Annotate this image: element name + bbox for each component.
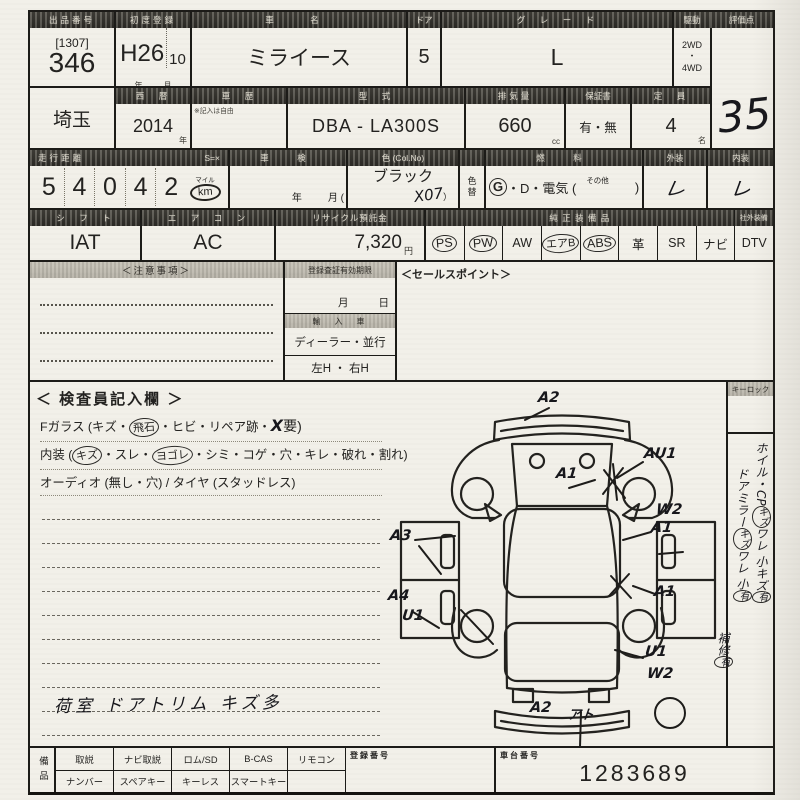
equip-airbag: エアB — [542, 226, 581, 260]
accessory-keyless: キーレス — [172, 771, 230, 793]
model-code-cell: 型 式 DBA - LA300S — [288, 88, 466, 148]
accessory-col-label-cell: 備品 — [30, 748, 56, 792]
band-equipment: シ フ ト IAT エ ア コ ン AC リサイクル預託金 7,320 円 純 … — [28, 210, 775, 262]
caution-line — [40, 304, 273, 306]
note-line — [42, 592, 380, 616]
note-line — [42, 496, 380, 520]
fuel-close-paren: ) — [635, 180, 639, 195]
caution-box: ＜注意事項＞ — [30, 262, 285, 380]
door-cell: ドア 5 — [408, 12, 442, 86]
auction-sheet: 出品番号 [1307] 346 初度登録 H26 10 年 月 車 名 ミライー… — [0, 0, 800, 800]
equip-abs: ABS — [581, 226, 620, 260]
damage-annotation: アト — [567, 704, 595, 723]
registration-number-box: 登録番号 — [346, 748, 496, 792]
exterior-grade-cell: 外装 レ — [644, 150, 708, 208]
color-value: ブラック — [373, 169, 433, 185]
warranty-header: 保証書 — [566, 88, 630, 104]
side-note-wheel: ホイル・CPキズワレ 小キズ有 — [752, 442, 771, 746]
import-header: 輸 入 車 — [285, 314, 395, 328]
mileage-digit: 0 — [95, 168, 126, 206]
reg-month-value: 10 — [169, 51, 186, 68]
interior-grade-cell: 内装 レ — [708, 150, 773, 208]
inspector-line-fglass: Fガラス (キズ・飛石・ヒビ・リペア跡・X要) — [40, 413, 382, 442]
accessory-remote: リモコン — [288, 748, 345, 770]
circle-mark-rear — [655, 698, 685, 728]
car-damage-diagram: A2 AU1 A1 W2 A1 A3 A4 U1 A1 U1 W2 A2 アト — [388, 382, 728, 748]
shift-header: シ フ ト — [30, 210, 140, 226]
equip-navi: ナビ — [697, 226, 736, 260]
mileage-cell: 走行距離 S=× 5 4 0 4 2 マイル km — [30, 150, 230, 208]
year-header: 西 暦 — [116, 88, 190, 104]
fuel-cell: 燃 料 G・D・電気 (その他) — [486, 150, 644, 208]
inspector-line-audio: オーディオ (無し・穴) / タイヤ (スタッドレス) — [40, 470, 382, 496]
equip-ps: PS — [426, 226, 465, 260]
drive-dot: ・ — [687, 51, 696, 62]
note-line: 荷室 ドアトリム キズ多 — [42, 688, 380, 712]
recycle-fee-unit: 円 — [404, 244, 413, 257]
color-cell: 色 (Col.No) ブラック X07） — [348, 150, 460, 208]
first-registration-header: 初度登録 — [116, 12, 190, 28]
aircon-value: AC — [142, 226, 274, 260]
mileage-header-suffix: S=× — [204, 153, 220, 163]
leader-a1-rear — [633, 586, 655, 594]
lot-number-cell: 出品番号 [1307] 346 — [30, 12, 116, 86]
leader-a1-right — [623, 532, 651, 540]
note-line — [42, 664, 380, 688]
history-header: 車 歴 — [192, 88, 286, 104]
mileage-digit: 5 — [34, 168, 65, 206]
displacement-unit: cc — [552, 137, 560, 146]
fuel-gasoline-circled: G — [488, 177, 507, 196]
damage-annotation: U1 — [644, 644, 668, 660]
capacity-cell: 定 員 4 名 — [632, 88, 710, 148]
expiry-day-label: 日 — [379, 295, 390, 310]
accessory-rom-sd: ロム/SD — [172, 748, 230, 770]
key-lock-header: キーロック — [728, 382, 773, 396]
drive-header: 駆動 — [674, 12, 710, 28]
history-note: ※記入は自由 — [192, 104, 286, 115]
damage-annotation: A3 — [389, 528, 412, 544]
sales-point-box: ＜セールスポイント＞ — [397, 262, 773, 380]
displacement-cell: 排気量 660 cc — [466, 88, 566, 148]
mileage-digit: 2 — [156, 168, 186, 206]
band-vehicle-mid: 埼玉 西 暦 2014 年 車 歴 ※記入は自由 型 式 DBA - LA300… — [28, 88, 712, 150]
shaken-year-label: 年 — [292, 189, 302, 204]
caution-header: ＜注意事項＞ — [30, 262, 283, 278]
side-note-mirror: ドアミラーキズワレ 小有 — [733, 442, 752, 746]
car-diagram-svg — [388, 382, 728, 748]
band-bottom: 備品 取説 ナビ取説 ロム/SD B-CAS リモコン ナンバー スペアキー キ… — [28, 748, 775, 795]
shift-value: IAT — [30, 226, 140, 260]
damage-annotation: W2 — [646, 666, 674, 682]
right-side-column: キーロック ホイル・CPキズワレ 小キズ有 ドアミラーキズワレ 小有 補修有 — [726, 382, 773, 746]
band-notes: ＜注意事項＞ 登録査証有効期限 月 日 輸 入 車 ディーラー・並行 左H ・ … — [28, 262, 775, 382]
year-cell: 西 暦 2014 年 — [116, 88, 192, 148]
inspector-title: ＜ 検査員記入欄 ＞ — [36, 388, 386, 409]
fuel-header: 燃 料 — [486, 150, 642, 166]
car-name-value: ミライース — [192, 28, 406, 86]
expiry-header: 登録査証有効期限 — [285, 262, 395, 278]
year-unit: 年 — [179, 135, 187, 146]
accessory-number-plate: ナンバー — [56, 771, 114, 793]
side-note-repair: 補修有 — [714, 442, 733, 746]
damage-annotation: W2 — [655, 502, 683, 518]
grade-header: グ レ ー ド — [442, 12, 672, 28]
fuel-options: ・D・電気 ( — [507, 178, 576, 197]
sales-point-header: ＜セールスポイント＞ — [397, 262, 773, 282]
accessory-col-label: 備品 — [35, 756, 49, 785]
damage-annotation: A2 — [529, 700, 552, 716]
exterior-mark: レ — [644, 161, 708, 208]
drive-cell: 駆動 2WD ・ 4WD — [674, 12, 710, 86]
accessory-grid: 取説 ナビ取説 ロム/SD B-CAS リモコン ナンバー スペアキー キーレス… — [56, 748, 346, 792]
score-value: 35 — [704, 25, 779, 151]
grade-value: L — [442, 28, 672, 86]
accessory-bcas: B-CAS — [230, 748, 288, 770]
history-cell: 車 歴 ※記入は自由 — [192, 88, 288, 148]
reg-year-value: H26 — [120, 40, 164, 68]
shaken-month-label: 月 ( — [328, 189, 344, 204]
damage-annotation: U1 — [401, 608, 425, 624]
note-line — [42, 616, 380, 640]
reg-year-unit: 年 — [135, 80, 143, 86]
key-lock-box — [728, 396, 773, 434]
note-line — [42, 520, 380, 544]
drive-2wd: 2WD — [682, 40, 702, 51]
caution-line — [40, 332, 273, 334]
chassis-number-value: 1283689 — [496, 755, 773, 792]
note-line — [42, 544, 380, 568]
model-code-header: 型 式 — [288, 88, 464, 104]
history-value — [192, 115, 286, 148]
chassis-number-box: 車台番号 1283689 — [496, 748, 773, 792]
accessory-empty — [288, 771, 345, 793]
recycle-fee-header: リサイクル預託金 — [276, 210, 424, 226]
side-handwritten-notes: ホイル・CPキズワレ 小キズ有 ドアミラーキズワレ 小有 補修有 — [728, 434, 773, 746]
equip-dtv: DTV — [735, 226, 773, 260]
note-line — [42, 568, 380, 592]
drive-4wd: 4WD — [682, 63, 702, 74]
accessory-spare-key: スペアキー — [114, 771, 172, 793]
damage-annotation: A1 — [555, 466, 578, 482]
color-header: 色 (Col.No) — [348, 150, 458, 166]
mileage-km-unit: km — [189, 183, 221, 202]
inspector-notes: ＜ 検査員記入欄 ＞ Fガラス (キズ・飛石・ヒビ・リペア跡・X要) 内装 (キ… — [30, 382, 388, 746]
aircon-header: エ ア コ ン — [142, 210, 274, 226]
equip-leather: 革 — [619, 226, 658, 260]
warranty-value: 有・無 — [566, 104, 630, 148]
note-line — [42, 712, 380, 736]
fuel-other-label: その他 — [586, 175, 609, 186]
band-mileage: 走行距離 S=× 5 4 0 4 2 マイル km 車 検 年 月 ( — [28, 150, 775, 210]
displacement-header: 排気量 — [466, 88, 564, 104]
color-change-label: 色替 — [466, 176, 479, 198]
shaken-cell: 車 検 年 月 ( — [230, 150, 348, 208]
color-change-cell: 色替 — [460, 150, 486, 208]
equip-pw: PW — [465, 226, 504, 260]
note-line — [42, 640, 380, 664]
oem-equipment-header: 純 正 装 備 品 — [426, 210, 735, 226]
model-code-value: DBA - LA300S — [288, 104, 464, 148]
warranty-cell: 保証書 有・無 — [566, 88, 632, 148]
shaken-header: 車 検 — [230, 150, 346, 166]
damage-annotation: A1 — [650, 520, 673, 536]
first-registration-cell: 初度登録 H26 10 年 月 — [116, 12, 192, 86]
recycle-fee-value: 7,320 — [354, 232, 402, 254]
band-inspection: ＜ 検査員記入欄 ＞ Fガラス (キズ・飛石・ヒビ・リペア跡・X要) 内装 (キ… — [28, 382, 775, 748]
mileage-digit: 4 — [126, 168, 157, 206]
car-outline — [401, 416, 715, 734]
damage-annotation: A4 — [387, 588, 410, 604]
expiry-month-label: 月 — [338, 295, 349, 310]
mileage-mile-label: マイル — [195, 174, 215, 184]
equip-sr: SR — [658, 226, 697, 260]
reg-month-unit: 月 — [164, 80, 172, 86]
mileage-header: 走行距離 — [38, 152, 84, 164]
aircon-cell: エ ア コ ン AC — [142, 210, 276, 260]
damage-annotation: AU1 — [643, 446, 677, 462]
capacity-unit: 名 — [698, 135, 706, 146]
door-value: 5 — [408, 28, 440, 86]
displacement-value: 660 — [466, 104, 564, 148]
damage-annotation: A2 — [537, 390, 560, 406]
mileage-digit: 4 — [65, 168, 96, 206]
handle-position: 左H ・ 右H — [285, 356, 395, 380]
equipment-block: 純 正 装 備 品 社外装備 PS PW AW エアB ABS 革 SR ナビ … — [426, 210, 773, 260]
import-type: ディーラー・並行 — [285, 328, 395, 356]
door-header: ドア — [408, 12, 440, 28]
recycle-fee-cell: リサイクル預託金 7,320 円 — [276, 210, 426, 260]
accessory-manual: 取説 — [56, 748, 114, 770]
interior-mark: レ — [708, 163, 773, 208]
region-value: 埼玉 — [30, 88, 114, 148]
damage-annotation: A1 — [653, 584, 676, 600]
inspector-line-interior: 内装 (キズ・スレ・ヨゴレ・シミ・コゲ・穴・キレ・破れ・割れ) — [40, 442, 382, 470]
car-name-cell: 車 名 ミライース — [192, 12, 408, 86]
accessory-navi-manual: ナビ取説 — [114, 748, 172, 770]
band-vehicle-top: 出品番号 [1307] 346 初度登録 H26 10 年 月 車 名 ミライー… — [28, 10, 712, 88]
capacity-header: 定 員 — [632, 88, 710, 104]
expiry-import-box: 登録査証有効期限 月 日 輸 入 車 ディーラー・並行 左H ・ 右H — [285, 262, 397, 380]
caution-line — [40, 360, 273, 362]
region-cell: 埼玉 — [30, 88, 116, 148]
color-code-value: X07 — [413, 186, 444, 206]
shift-cell: シ フ ト IAT — [30, 210, 142, 260]
grade-cell: グ レ ー ド L — [442, 12, 674, 86]
registration-number-label: 登録番号 — [346, 748, 494, 761]
score-box: 評価点 35 — [710, 10, 775, 150]
x-mark-right-fender — [603, 464, 625, 500]
car-name-header: 車 名 — [192, 12, 406, 28]
lot-number-header: 出品番号 — [30, 12, 114, 28]
accessory-smart-key: スマートキー — [230, 771, 288, 793]
leader-a2-front — [525, 408, 549, 420]
equip-aw: AW — [503, 226, 542, 260]
lot-number-value: 346 — [49, 49, 96, 77]
aftermarket-header: 社外装備 — [735, 210, 773, 226]
